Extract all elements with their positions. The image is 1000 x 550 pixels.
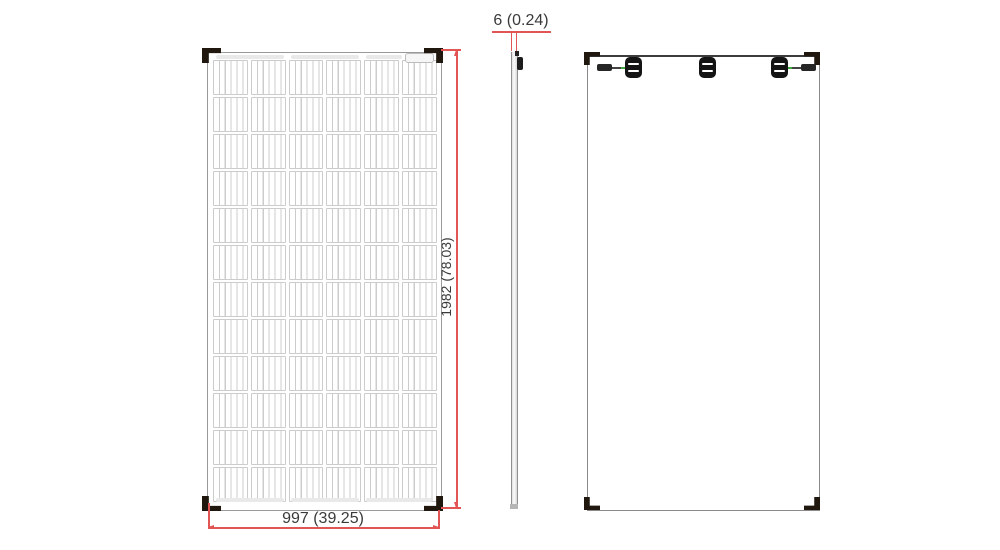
side-view-bottom-cap <box>510 504 518 509</box>
cell-grid <box>213 60 437 502</box>
solar-cell <box>326 393 361 428</box>
height-dim-arrow-bottom <box>454 502 458 508</box>
junction-box-right <box>771 57 816 78</box>
junction-box-icon <box>699 57 716 78</box>
solar-cell <box>213 430 248 465</box>
height-dim-ext-top <box>441 49 461 51</box>
thickness-dim-label: 6 (0.24) <box>493 12 548 30</box>
solar-cell <box>213 356 248 391</box>
solar-cell <box>364 60 399 95</box>
solar-cell <box>364 319 399 354</box>
junction-box-left <box>597 57 642 78</box>
solar-cell <box>326 208 361 243</box>
connector-plug-icon <box>801 64 816 71</box>
solar-cell <box>402 282 437 317</box>
solar-cell <box>289 282 324 317</box>
solar-cell <box>326 467 361 502</box>
solar-cell <box>326 97 361 132</box>
thickness-ext-left <box>511 32 512 51</box>
solar-cell <box>402 208 437 243</box>
solar-cell <box>251 430 286 465</box>
solar-cell <box>326 356 361 391</box>
solar-cell <box>364 430 399 465</box>
solar-cell <box>402 356 437 391</box>
solar-cell <box>213 97 248 132</box>
solar-cell <box>402 97 437 132</box>
solar-cell <box>402 467 437 502</box>
solar-cell <box>213 60 248 95</box>
solar-cell <box>326 430 361 465</box>
solar-cell <box>326 60 361 95</box>
side-junction-box-icon <box>517 57 523 70</box>
back-view-frame <box>587 55 820 511</box>
solar-cell <box>402 319 437 354</box>
solar-cell <box>289 171 324 206</box>
solar-cell <box>289 356 324 391</box>
solar-cell <box>402 134 437 169</box>
solar-cell <box>402 245 437 280</box>
solar-cell <box>289 134 324 169</box>
solar-cell <box>289 430 324 465</box>
solar-cell <box>326 245 361 280</box>
bottom-ribbon-strip <box>291 498 359 502</box>
solar-cell <box>364 134 399 169</box>
solar-cell <box>289 208 324 243</box>
solar-cell <box>251 467 286 502</box>
width-dim-arrow-right <box>433 525 439 529</box>
solar-cell <box>251 97 286 132</box>
solar-cell <box>251 319 286 354</box>
height-dim-ext-bottom <box>441 507 461 509</box>
solar-cell <box>251 282 286 317</box>
solar-cell <box>251 171 286 206</box>
solar-cell <box>402 60 437 95</box>
bottom-ribbon-strip <box>216 498 284 502</box>
solar-cell <box>251 134 286 169</box>
solar-cell <box>251 393 286 428</box>
junction-box-icon <box>771 57 788 78</box>
solar-cell <box>364 393 399 428</box>
top-ribbon-strip <box>291 55 359 59</box>
height-dim-label: 1982 (78.03) <box>438 237 454 316</box>
solar-cell <box>213 208 248 243</box>
solar-cell <box>289 319 324 354</box>
solar-cell <box>289 97 324 132</box>
solar-cell <box>326 319 361 354</box>
cable-icon <box>612 67 625 69</box>
solar-cell <box>402 430 437 465</box>
width-dim-arrow-left <box>208 525 214 529</box>
bottom-ribbon-strip <box>366 498 432 502</box>
solar-cell <box>326 282 361 317</box>
solar-cell <box>364 171 399 206</box>
solar-cell <box>251 60 286 95</box>
solar-cell <box>213 134 248 169</box>
solar-cell <box>364 467 399 502</box>
solar-cell <box>326 134 361 169</box>
solar-cell <box>251 208 286 243</box>
solar-cell <box>213 282 248 317</box>
solar-cell <box>251 245 286 280</box>
junction-box-middle <box>699 57 716 78</box>
nameplate-chip <box>405 53 434 63</box>
solar-cell <box>364 245 399 280</box>
solar-cell <box>289 60 324 95</box>
solar-cell <box>213 171 248 206</box>
solar-cell <box>364 356 399 391</box>
junction-box-icon <box>625 57 642 78</box>
solar-cell <box>364 282 399 317</box>
solar-cell <box>326 171 361 206</box>
top-ribbon-strip <box>366 55 402 59</box>
top-ribbon-strip <box>216 55 284 59</box>
solar-cell <box>213 245 248 280</box>
solar-cell <box>402 171 437 206</box>
solar-cell <box>402 393 437 428</box>
solar-cell <box>289 245 324 280</box>
side-view-profile <box>511 52 518 508</box>
solar-cell <box>251 356 286 391</box>
solar-cell <box>213 393 248 428</box>
solar-cell <box>289 467 324 502</box>
height-dim-arrow-top <box>454 50 458 56</box>
thickness-ext-right <box>516 32 517 51</box>
thickness-dim-underline <box>492 31 551 33</box>
solar-cell <box>213 467 248 502</box>
solar-cell <box>289 393 324 428</box>
side-view-top-tick <box>515 51 519 56</box>
width-dim-label: 997 (39.25) <box>282 510 364 528</box>
cable-icon <box>788 67 801 69</box>
connector-plug-icon <box>597 64 612 71</box>
solar-cell <box>364 208 399 243</box>
solar-cell <box>364 97 399 132</box>
height-dim-line <box>456 50 458 508</box>
solar-cell <box>213 319 248 354</box>
